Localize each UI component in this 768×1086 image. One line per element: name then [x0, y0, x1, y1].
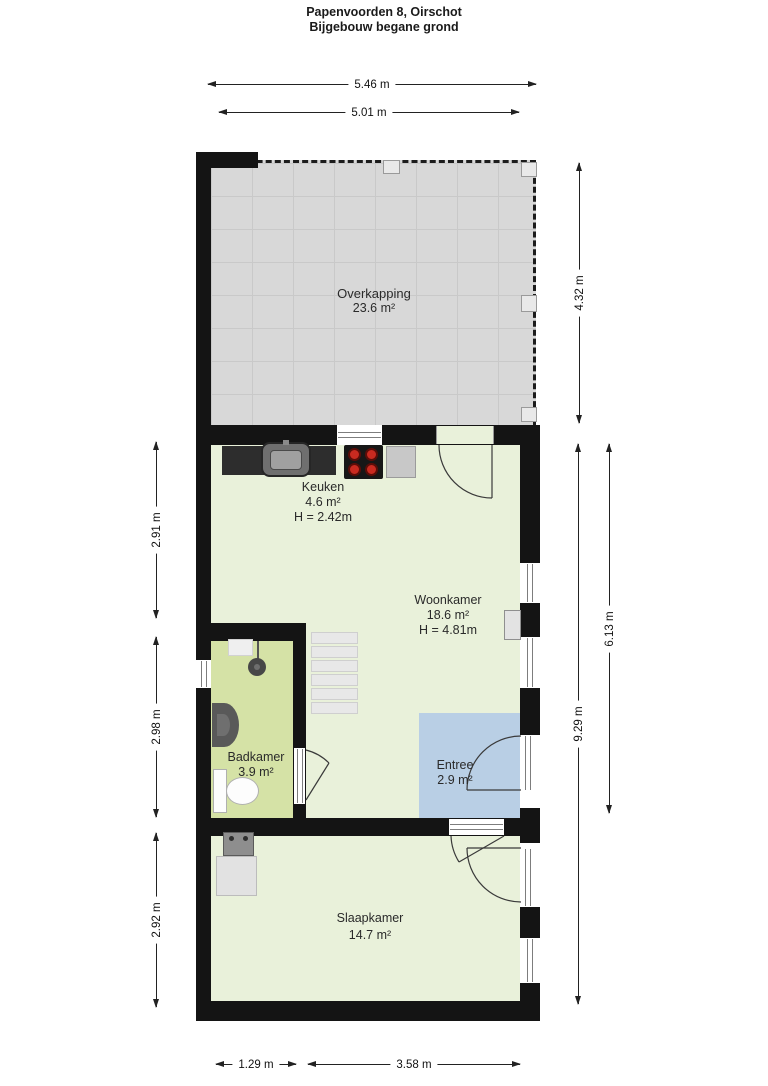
- dim-label: 6.13 m: [604, 605, 616, 652]
- dim-label: 4.32 m: [574, 269, 586, 316]
- dim-label: 2.91 m: [151, 506, 163, 553]
- front-door-opening: [520, 735, 540, 808]
- stove-burner: [365, 463, 378, 476]
- overkapping-post: [521, 295, 537, 312]
- stove-burner: [365, 448, 378, 461]
- door-sill: [450, 824, 503, 830]
- room-name: Woonkamer: [388, 593, 508, 608]
- livingroom-window-lower: [520, 637, 540, 688]
- toilet-bowl: [226, 777, 259, 805]
- room-name: Entree: [415, 758, 495, 773]
- dim-width-slaapkamer-bottom: 3.58 m: [307, 1060, 521, 1069]
- window-glass: [201, 661, 207, 687]
- dim-label: 9.29 m: [573, 700, 585, 747]
- room-area: 3.9 m²: [206, 765, 306, 780]
- room-ceiling-height: H = 2.42m: [268, 510, 378, 525]
- bedroom-door-swing: [465, 846, 523, 904]
- bathroom-window: [196, 660, 211, 688]
- dim-label: 3.58 m: [390, 1059, 437, 1071]
- room-area: 4.6 m²: [268, 495, 378, 510]
- room-label-entree: Entree 2.9 m²: [415, 758, 495, 788]
- door-arc: [451, 836, 459, 862]
- kitchen-sink: [261, 442, 311, 477]
- room-area: 18.6 m²: [388, 608, 508, 623]
- door-slab: [525, 849, 531, 906]
- stairs: [311, 632, 358, 714]
- plan-title-subtitle: Bijgebouw begane grond: [0, 20, 768, 35]
- wall-bathroom-right: [293, 623, 306, 836]
- dim-width-total-top: 5.46 m: [207, 80, 537, 89]
- door-arc: [439, 445, 492, 498]
- stove-burner: [348, 448, 361, 461]
- kitchen-sink-basin: [270, 450, 302, 470]
- room-label-slaapkamer: Slaapkamer 14.7 m²: [310, 911, 430, 943]
- room-name: Keuken: [268, 480, 378, 495]
- stair-step: [311, 646, 358, 658]
- dim-label: 1.29 m: [232, 1059, 279, 1071]
- room-name: Badkamer: [206, 750, 306, 765]
- bedroom-window: [520, 938, 540, 983]
- washbasin-bowl: [217, 714, 230, 736]
- dim-height-keuken-zone: 2.91 m: [152, 441, 161, 619]
- dim-label: 2.98 m: [151, 703, 163, 750]
- plan-title-address: Papenvoorden 8, Oirschot: [0, 5, 768, 20]
- room-name: Slaapkamer: [310, 911, 430, 926]
- door-arc: [467, 848, 521, 902]
- dim-height-slaapkamer-zone: 2.92 m: [152, 832, 161, 1008]
- window-glass: [338, 432, 381, 438]
- room-name: Overkapping: [299, 286, 449, 301]
- kitchen-window: [337, 425, 382, 445]
- room-area: 23.6 m²: [299, 301, 449, 316]
- window-glass: [527, 564, 533, 602]
- livingroom-window-upper: [520, 563, 540, 603]
- room-ceiling-height: H = 4.81m: [388, 623, 508, 638]
- bedroom-cabinet: [216, 856, 257, 896]
- plan-title: Papenvoorden 8, Oirschot Bijgebouw began…: [0, 5, 768, 35]
- overkapping-post: [521, 162, 537, 177]
- room-label-keuken: Keuken 4.6 m² H = 2.42m: [268, 480, 378, 525]
- dim-height-overkapping: 4.32 m: [575, 162, 584, 424]
- wall-right: [520, 425, 540, 1021]
- washing-machine: [223, 832, 254, 856]
- washing-machine-knob: [229, 836, 234, 841]
- room-area: 14.7 m²: [310, 928, 430, 943]
- kitchen-appliance: [386, 446, 416, 478]
- shower-head: [248, 658, 266, 676]
- kitchen-faucet: [283, 440, 289, 445]
- stove: [344, 445, 383, 479]
- bathroom-door-swing: [302, 746, 336, 804]
- room-label-overkapping: Overkapping 23.6 m²: [299, 286, 449, 316]
- dim-label: 2.92 m: [151, 896, 163, 943]
- wall-bottom: [196, 1001, 540, 1021]
- room-area: 2.9 m²: [415, 773, 495, 788]
- floorplan-canvas: Papenvoorden 8, Oirschot Bijgebouw began…: [0, 0, 768, 1086]
- wall-left: [196, 152, 211, 1021]
- washing-machine-knob: [243, 836, 248, 841]
- shower-head-center: [254, 664, 260, 670]
- dim-width-badkamer-bottom: 1.29 m: [215, 1060, 297, 1069]
- bedroom-door-opening: [520, 843, 540, 907]
- window-glass: [527, 638, 533, 687]
- stair-step: [311, 688, 358, 700]
- stove-burner: [348, 463, 361, 476]
- dim-height-total-right: 9.29 m: [574, 443, 583, 1005]
- dim-label: 5.01 m: [345, 107, 392, 119]
- door-leaf: [306, 763, 329, 800]
- dim-height-badkamer-zone: 2.98 m: [152, 636, 161, 818]
- window-glass: [527, 939, 533, 982]
- stair-step: [311, 702, 358, 714]
- overkapping-post: [521, 407, 537, 422]
- room-label-badkamer: Badkamer 3.9 m²: [206, 750, 306, 780]
- stair-step: [311, 660, 358, 672]
- stair-step: [311, 632, 358, 644]
- bathroom-shelf: [228, 639, 253, 656]
- kitchen-door-opening: [436, 426, 494, 444]
- stair-step: [311, 674, 358, 686]
- dim-height-woonkamer-side: 6.13 m: [605, 443, 614, 814]
- kitchen-door-swing: [435, 443, 497, 501]
- dim-label: 5.46 m: [348, 79, 395, 91]
- door-arc: [306, 750, 329, 763]
- room-label-woonkamer: Woonkamer 18.6 m² H = 4.81m: [388, 593, 508, 638]
- dim-width-overkapping: 5.01 m: [218, 108, 520, 117]
- overkapping-post: [383, 160, 400, 174]
- door-slab: [525, 736, 531, 790]
